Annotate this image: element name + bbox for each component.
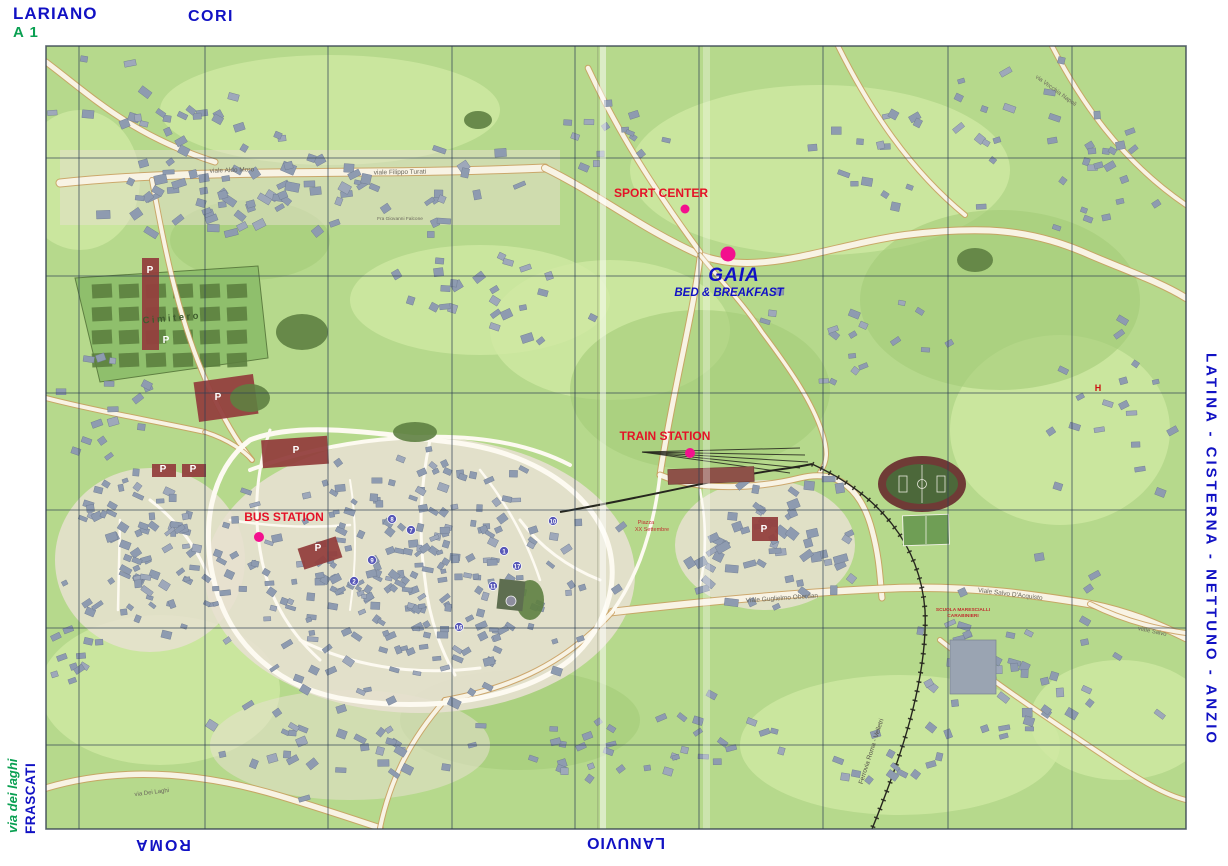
building [96, 210, 110, 219]
building [476, 504, 482, 511]
building [163, 170, 175, 175]
building [291, 579, 297, 585]
building [220, 590, 231, 596]
building [198, 173, 209, 182]
building [200, 187, 209, 195]
gaia-bed-breakfast-sublabel: BED & BREAKFAST [674, 287, 784, 299]
cemetery-plot [119, 329, 140, 344]
building [427, 231, 434, 237]
train-station-marker-dot [685, 448, 695, 458]
cemetery-plot [227, 306, 248, 321]
building [439, 303, 450, 309]
building [565, 590, 571, 596]
building [108, 407, 119, 413]
building [550, 726, 558, 731]
wooded-park [464, 111, 492, 129]
building [593, 160, 599, 166]
building [86, 504, 95, 512]
building [156, 499, 164, 504]
street-label: Fra Giovanni Falcone [377, 216, 423, 222]
building [441, 569, 447, 574]
building [418, 604, 425, 609]
building [1131, 442, 1140, 448]
building [476, 609, 485, 618]
school-building [950, 640, 996, 694]
building [432, 656, 441, 661]
building [134, 114, 142, 122]
building [851, 181, 859, 186]
street-label: SCUOLA MARESCIALLI [936, 607, 991, 613]
building [219, 751, 226, 758]
building [415, 563, 424, 568]
cemetery-plot [119, 283, 140, 298]
building [768, 310, 776, 317]
building [361, 594, 366, 598]
building [149, 513, 155, 520]
building [1094, 111, 1101, 119]
building [476, 723, 487, 728]
building [440, 626, 448, 632]
building [47, 110, 57, 116]
building [848, 353, 856, 358]
building [218, 201, 226, 208]
building [494, 148, 506, 157]
building [304, 181, 315, 187]
wooded-park [957, 248, 993, 272]
building [133, 469, 140, 477]
numbered-poi-label: 10 [550, 519, 557, 525]
building [231, 516, 238, 523]
building [584, 119, 594, 125]
train-station-label: TRAIN STATION [620, 429, 711, 443]
building [976, 204, 986, 209]
building [137, 423, 145, 430]
building [169, 494, 176, 502]
building [440, 527, 450, 533]
bus-station-label: BUS STATION [244, 510, 324, 524]
building [713, 759, 721, 765]
building [561, 768, 569, 775]
building [344, 164, 355, 173]
building [265, 581, 274, 586]
building [76, 653, 86, 659]
building [1010, 663, 1018, 672]
parking-p-label: P [147, 265, 154, 276]
street-label: CARABINIERI [947, 613, 979, 619]
building [189, 565, 199, 571]
building [192, 544, 202, 553]
building [470, 520, 476, 527]
building [222, 175, 230, 181]
building [724, 598, 739, 607]
building [727, 512, 737, 521]
building [82, 110, 94, 119]
building [361, 173, 372, 184]
building [283, 751, 291, 758]
building [473, 189, 482, 200]
bus-station-marker-dot [254, 532, 264, 542]
sport-center-label: SPORT CENTER [614, 186, 708, 200]
building [1021, 669, 1029, 677]
cemetery-plot [200, 329, 221, 344]
building [876, 141, 885, 150]
street-label: viale Filippo Turati [374, 169, 427, 177]
building [450, 279, 457, 287]
building [441, 763, 450, 771]
building [335, 767, 346, 772]
fold-shadow [597, 46, 599, 829]
building [120, 609, 127, 616]
building [890, 202, 900, 212]
wooded-park [276, 314, 328, 350]
numbered-poi-label: 11 [490, 584, 497, 590]
building [134, 579, 142, 588]
building [441, 285, 451, 292]
building [644, 765, 651, 771]
building [1022, 708, 1032, 717]
building [511, 498, 521, 502]
building [680, 746, 688, 754]
building [796, 580, 803, 587]
building [109, 358, 116, 365]
parking-p-label: P [163, 335, 170, 346]
building [822, 476, 835, 482]
sport-center-marker-dot [681, 205, 690, 214]
building [1057, 57, 1065, 65]
building [239, 586, 247, 592]
building [898, 300, 905, 306]
building [455, 574, 463, 580]
building [437, 218, 451, 224]
dark-field [570, 310, 830, 470]
building [725, 565, 739, 574]
building [769, 548, 781, 554]
parking-p-label: P [160, 464, 167, 475]
building [487, 559, 497, 566]
wooded-park [393, 422, 437, 442]
gaia-bed-breakfast-marker-dot [721, 247, 736, 262]
building [563, 119, 572, 125]
parking-p-label: P [190, 464, 197, 475]
building [307, 636, 318, 641]
street-label: Piazza [638, 520, 655, 526]
building [1115, 141, 1125, 151]
numbered-poi-label: 16 [456, 625, 463, 631]
building [1056, 688, 1064, 697]
building [808, 144, 818, 151]
building [1126, 411, 1137, 416]
building [519, 304, 527, 310]
cemetery-plot [92, 329, 113, 344]
building [469, 471, 477, 479]
parking-p-label: P [315, 543, 322, 554]
building [861, 177, 873, 187]
building [752, 485, 760, 494]
building [370, 493, 378, 501]
building [1034, 553, 1044, 562]
cemetery-plot [119, 306, 140, 321]
cemetery-plot [200, 352, 221, 367]
building [819, 379, 829, 384]
light-field [350, 245, 610, 355]
cathedral-dome [506, 596, 516, 606]
street-label: H [1095, 383, 1102, 393]
building [345, 545, 352, 551]
cemetery-plot [92, 306, 113, 321]
parking-p-label: P [293, 445, 300, 456]
cemetery-plot [227, 352, 248, 367]
fold-seam [600, 46, 606, 829]
building [473, 574, 479, 580]
building [419, 644, 428, 650]
building [831, 127, 841, 135]
building [310, 187, 322, 196]
building [104, 381, 114, 386]
building [840, 773, 850, 781]
building [182, 544, 189, 549]
building [264, 617, 271, 622]
building [189, 169, 198, 178]
cemetery-plot [227, 283, 248, 298]
building [435, 258, 444, 265]
building [835, 483, 845, 494]
building [1025, 727, 1034, 731]
city-map-image: viale Aldo Moroviale Filippo TuratiFra G… [0, 0, 1228, 866]
building [804, 481, 815, 491]
building [418, 504, 428, 512]
building [309, 630, 315, 636]
parking-p-label: P [761, 524, 768, 535]
building [575, 519, 582, 526]
building [527, 623, 534, 630]
building [445, 604, 452, 612]
building [135, 195, 144, 201]
gaia-bed-breakfast-label: GAIA [708, 265, 760, 286]
train-station-building [668, 467, 754, 485]
wooded-park [230, 384, 270, 412]
parking-p-label: P [215, 392, 222, 403]
street-label: XX Settembre [635, 527, 669, 533]
building [516, 575, 523, 580]
building [425, 446, 432, 452]
building [335, 484, 346, 492]
building [182, 513, 189, 520]
building [824, 559, 832, 566]
cemetery-plot [200, 283, 221, 298]
building [378, 760, 390, 767]
cemetery-plot [119, 352, 140, 367]
cemetery-plot [227, 329, 248, 344]
building [830, 586, 837, 595]
scanned-city-map-page: { "edge_labels": { "top_left_city": "LAR… [0, 0, 1228, 866]
building [56, 389, 66, 395]
building [951, 699, 959, 706]
cemetery-plot [146, 352, 167, 367]
building [80, 56, 88, 63]
building [856, 138, 863, 144]
building [437, 632, 448, 639]
cemetery-plot [92, 283, 113, 298]
building [212, 586, 219, 591]
numbered-poi-label: 17 [514, 564, 521, 570]
building [371, 602, 380, 610]
building [307, 593, 315, 601]
building [1088, 148, 1096, 154]
building [413, 627, 420, 631]
building [921, 347, 930, 352]
building [95, 639, 103, 645]
building [372, 478, 382, 483]
building [549, 532, 558, 540]
building [509, 470, 517, 477]
light-field [160, 55, 500, 165]
cemetery-plot [200, 306, 221, 321]
building [184, 577, 191, 582]
building [207, 224, 219, 232]
cemetery-plot [173, 352, 194, 367]
building [402, 587, 412, 592]
building [83, 356, 95, 363]
